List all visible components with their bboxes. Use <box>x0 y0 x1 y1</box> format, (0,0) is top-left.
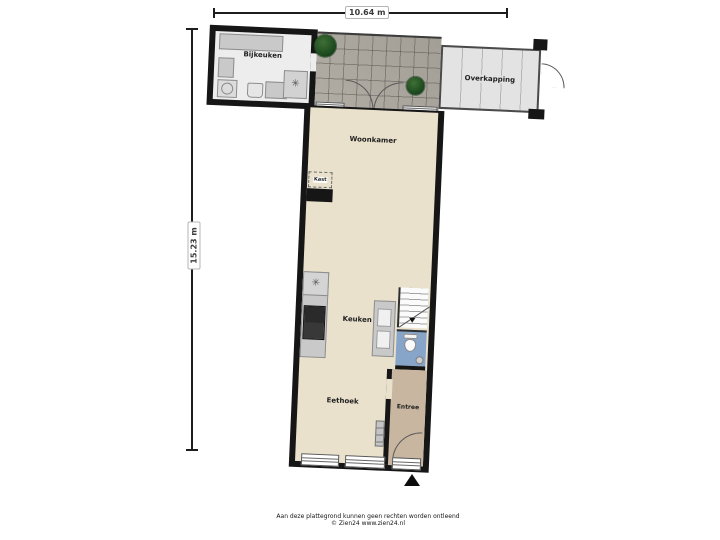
height-dim-tick-top <box>186 28 198 30</box>
room-label-kast: Kast <box>313 176 328 183</box>
width-dim-tick-left <box>213 8 215 18</box>
room-label-overkapping: Overkapping <box>462 74 517 84</box>
wall-stub <box>533 39 547 51</box>
cabinet-icon <box>218 57 235 78</box>
floorplan-page: 10.64 m 15.23 m ✳ Bijkeuken Overkapping <box>0 0 720 540</box>
room-overkapping: Overkapping <box>438 45 541 113</box>
meter-cupboard-icon <box>375 420 385 446</box>
window-icon <box>301 453 339 467</box>
window-icon <box>392 457 421 470</box>
entree-door-opening <box>386 379 393 399</box>
boiler-icon: ✳ <box>283 70 308 99</box>
wall-bump <box>306 188 333 202</box>
laundry-sink-icon <box>247 82 264 98</box>
appliance-icon <box>376 330 391 349</box>
stair-direction-icon <box>409 318 415 323</box>
stove-icon <box>302 305 325 340</box>
copyright-line: © Zien24 www.zien24.nl <box>60 520 676 527</box>
overkapping-door-arc <box>541 63 566 88</box>
hob-icon: ✳ <box>302 271 329 296</box>
closet-kast: Kast <box>308 171 333 188</box>
washer-icon <box>217 79 238 98</box>
width-dimension-label: 10.64 m <box>345 6 389 19</box>
appliance-icon <box>377 308 392 327</box>
washer-drum-icon <box>221 82 234 95</box>
wall-stub <box>528 109 544 120</box>
north-arrow-icon <box>404 474 420 486</box>
floorplan: ✳ Bijkeuken Overkapping Woonkamer Kast ✳… <box>191 19 546 481</box>
room-label-entree: Entree <box>390 403 425 412</box>
tall-cabinet-icon <box>372 300 396 357</box>
disclaimer-line: Aan deze plattegrond kunnen geen rechten… <box>60 513 676 520</box>
width-dim-tick-right <box>506 8 508 18</box>
footer-disclaimer: Aan deze plattegrond kunnen geen rechten… <box>60 513 676 527</box>
window-icon <box>345 455 385 469</box>
